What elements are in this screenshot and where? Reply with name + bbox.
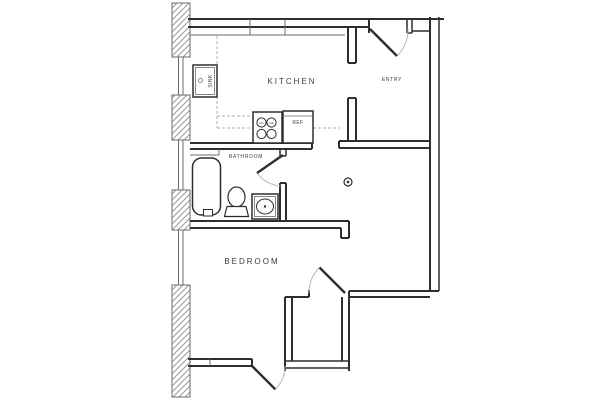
window <box>179 230 184 285</box>
toilet <box>225 187 249 217</box>
basin-drain-icon <box>264 205 266 207</box>
wall-segment <box>172 95 190 140</box>
bedroom-door <box>252 366 285 389</box>
kitchen-sink-label: SINK <box>208 74 214 88</box>
wall-segment <box>172 190 190 230</box>
kitchen-entry-wall <box>348 27 356 141</box>
bathroom-sink <box>252 194 278 219</box>
burner-icon <box>257 129 266 138</box>
entry-door <box>370 29 408 56</box>
closet-door <box>309 268 345 294</box>
refrigerator-label: REF <box>292 120 303 126</box>
range-label-left: RA <box>259 121 263 125</box>
bedroom-top-wall <box>190 221 349 238</box>
range-label-right: GE <box>269 121 273 125</box>
wall-segment <box>172 3 190 57</box>
bedroom-label: BEDROOM <box>224 257 279 266</box>
floor-plan-drawing: SINK RA GE REF KITCHEN ENTRY B <box>0 0 600 400</box>
range: RA GE <box>253 112 282 143</box>
entry-door-leaf <box>370 29 397 56</box>
exterior-wall-right <box>430 17 439 291</box>
bedroom-door-leaf <box>252 366 275 389</box>
window <box>179 57 184 95</box>
exterior-wall-top <box>188 19 444 35</box>
closet-walls <box>285 290 439 371</box>
kitchen-sink: SINK <box>193 65 217 97</box>
exterior-wall-left <box>172 3 190 397</box>
closet-door-swing-arc <box>309 268 320 294</box>
burner-icon <box>267 129 276 138</box>
bedroom-door-swing-arc <box>275 366 285 389</box>
tub-drain-icon <box>204 210 213 217</box>
bathroom-door-swing-arc <box>257 173 282 186</box>
entry-label: ENTRY <box>382 77 402 83</box>
entry-door-swing-arc <box>397 29 408 56</box>
window <box>179 140 184 190</box>
bathtub <box>193 158 221 216</box>
toilet-tank <box>225 207 249 217</box>
entry-bottom-wall <box>339 141 430 148</box>
refrigerator: REF <box>283 111 313 143</box>
closet-door-leaf <box>320 268 346 294</box>
floor-symbol <box>344 178 352 186</box>
wall-segment <box>172 285 190 397</box>
floor-plan-canvas: SINK RA GE REF KITCHEN ENTRY B <box>0 0 600 400</box>
kitchen-label: KITCHEN <box>267 77 316 86</box>
bedroom-bottom-wall <box>188 359 252 366</box>
bathroom-label: BATHROOM <box>229 154 263 160</box>
